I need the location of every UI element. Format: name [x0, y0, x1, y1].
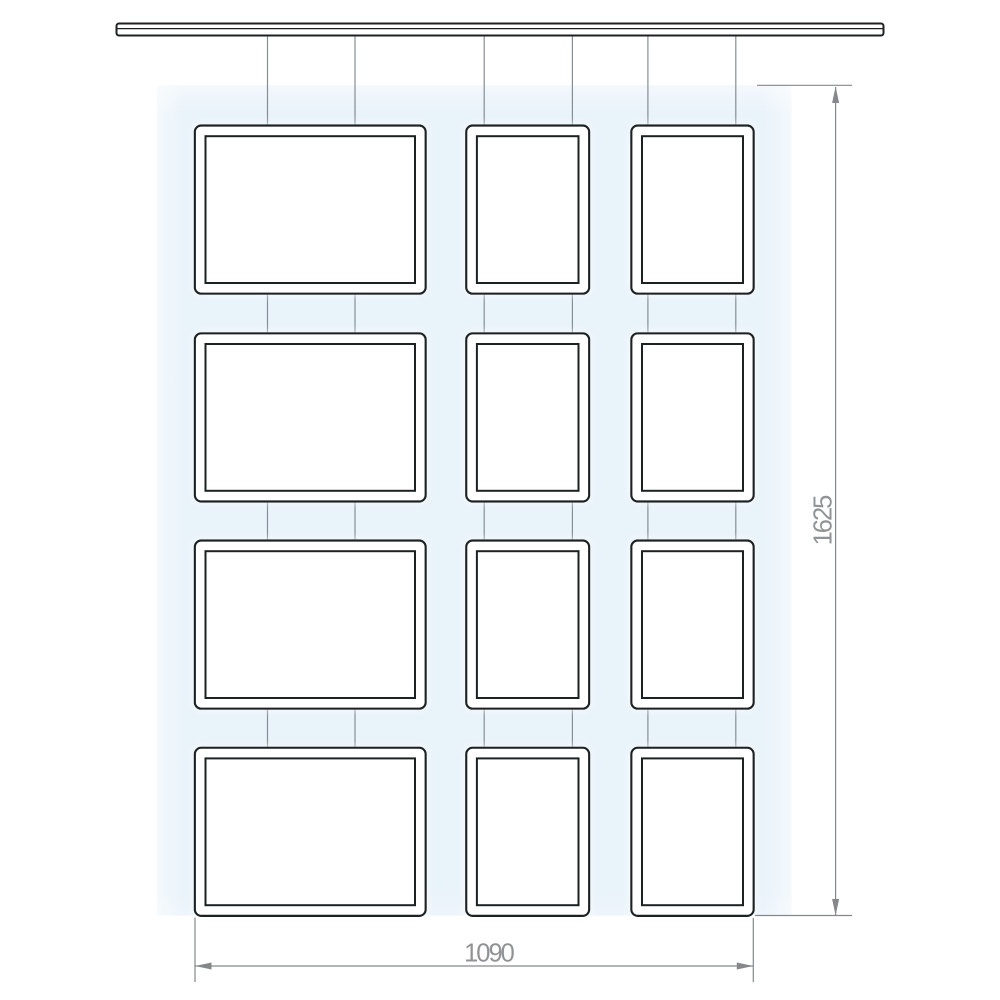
svg-text:1625: 1625	[810, 495, 838, 546]
svg-text:1090: 1090	[464, 940, 515, 968]
